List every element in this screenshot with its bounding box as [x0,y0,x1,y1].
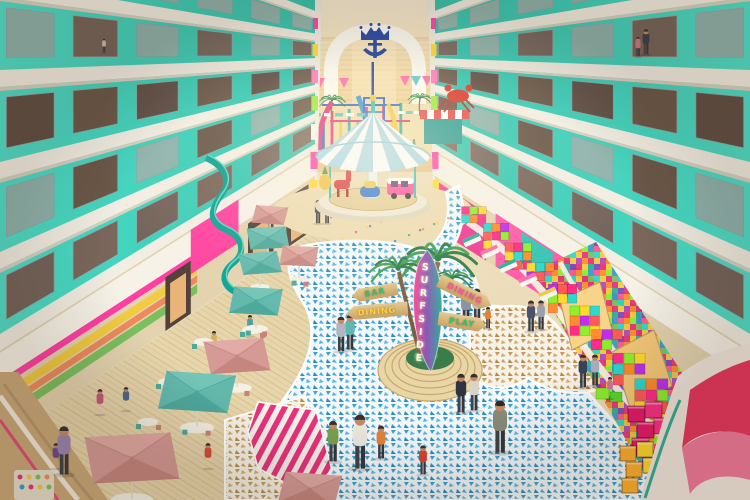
surfside-atrium-rendering: BAR DINING DINING PLAY SURFSIDE [0,0,750,500]
scene-svg [0,0,750,500]
light-glow [0,0,750,500]
